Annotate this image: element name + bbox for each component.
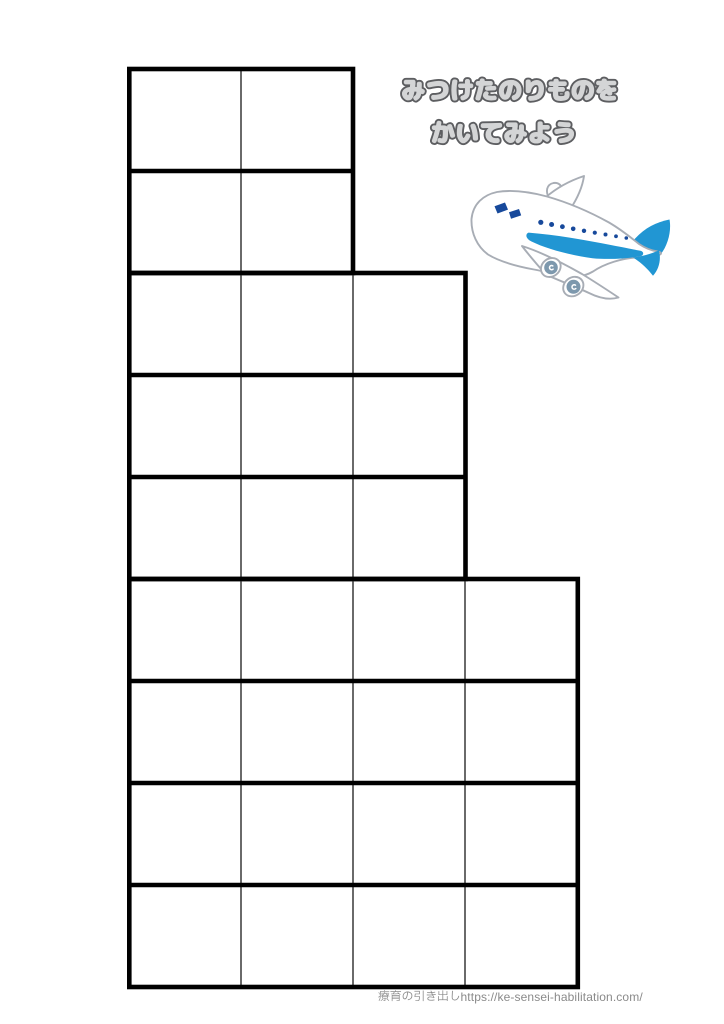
svg-text:https://ke-sensei-habilitation: https://ke-sensei-habilitation.com/ <box>461 990 644 1004</box>
